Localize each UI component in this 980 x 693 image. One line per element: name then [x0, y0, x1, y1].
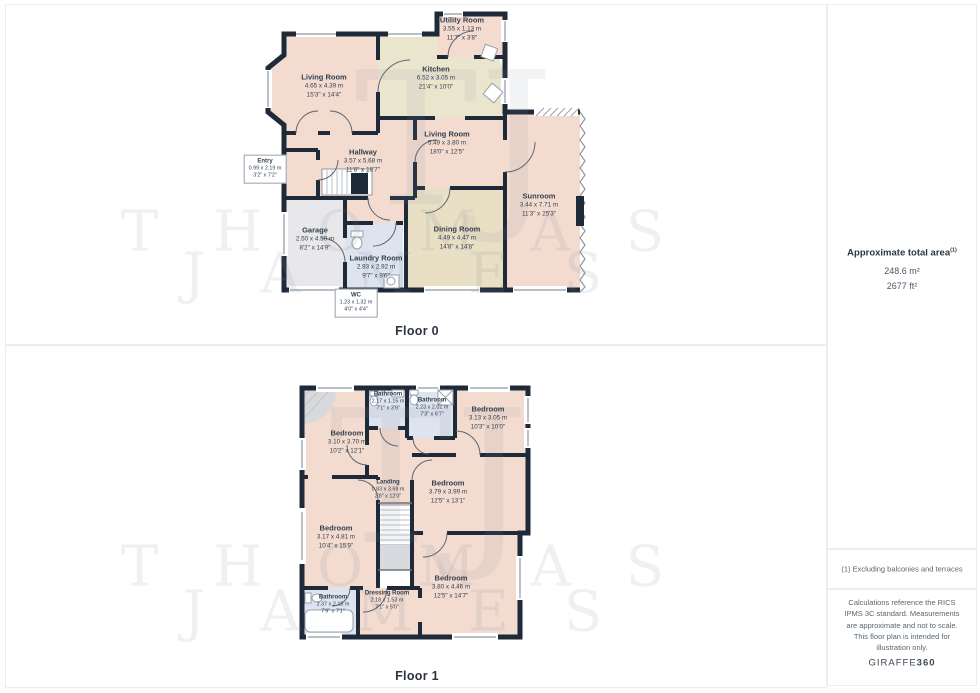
total-area-imperial: 2677 ft²	[887, 281, 918, 291]
brand-suffix: 360	[917, 658, 936, 669]
brand-name: GIRAFFE	[868, 658, 916, 669]
room-bedroom-b	[412, 533, 520, 637]
disclaimer-text: Calculations reference the RICS IPMS 3C …	[839, 597, 965, 653]
room-garage	[284, 198, 345, 290]
giraffe360-logo: GIRAFFE360	[868, 658, 935, 669]
room-bedroom-tr	[455, 388, 528, 455]
floor1-rooms	[302, 388, 528, 637]
floorplan-page: TJ THOMAS JAMES TJ THOMAS JAMES Utility …	[0, 0, 980, 693]
footnote-text: (1) Excluding balconies and terraces	[831, 563, 973, 574]
total-area-heading: Approximate total area(1)	[847, 247, 957, 258]
room-lobby	[345, 198, 408, 223]
room-sunroom	[505, 112, 580, 290]
total-area-metric: 248.6 m²	[884, 266, 920, 276]
room-dining	[408, 188, 505, 290]
total-area-footnote-marker: (1)	[950, 247, 957, 253]
total-area-label: Approximate total area	[847, 248, 950, 259]
room-living-room-2	[415, 118, 505, 188]
room-wc	[337, 290, 372, 308]
room-dressing	[358, 588, 420, 637]
floorplans-drawing	[0, 0, 980, 693]
floor0-label: Floor 0	[395, 324, 439, 338]
floor0-stairs	[322, 169, 372, 195]
room-bedroom-mr	[412, 455, 528, 533]
room-bedroom-l	[302, 477, 378, 588]
floor0-rooms	[268, 14, 580, 308]
floor1-label: Floor 1	[395, 669, 439, 683]
